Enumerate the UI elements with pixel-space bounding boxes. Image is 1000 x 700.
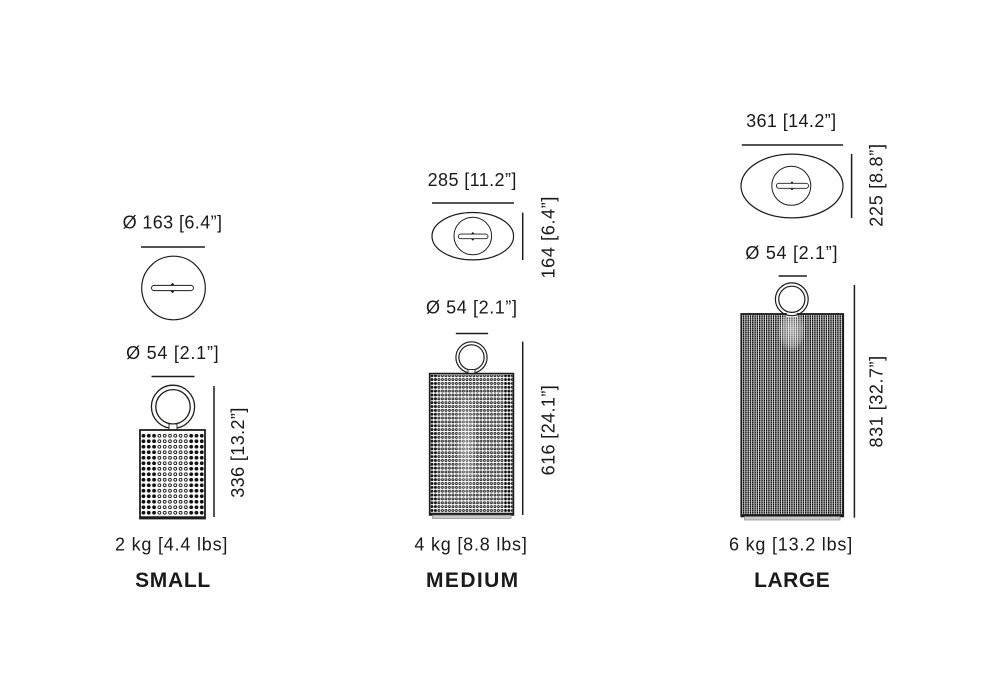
svg-text:Ø 54 [2.1”]: Ø 54 [2.1”]	[126, 343, 219, 363]
svg-text:225 [8.8”]: 225 [8.8”]	[867, 143, 887, 227]
svg-text:831 [32.7”]: 831 [32.7”]	[867, 355, 887, 447]
svg-text:616 [24.1”]: 616 [24.1”]	[539, 385, 559, 475]
svg-text:SMALL: SMALL	[135, 569, 211, 592]
svg-text:Ø 54 [2.1”]: Ø 54 [2.1”]	[426, 298, 518, 318]
svg-text:4 kg [8.8 lbs]: 4 kg [8.8 lbs]	[414, 535, 527, 555]
svg-text:MEDIUM: MEDIUM	[426, 569, 520, 592]
svg-text:Ø 54 [2.1”]: Ø 54 [2.1”]	[745, 243, 838, 263]
svg-text:164 [6.4”]: 164 [6.4”]	[539, 196, 559, 279]
svg-text:LARGE: LARGE	[754, 569, 830, 592]
svg-text:Ø 163 [6.4”]: Ø 163 [6.4”]	[123, 213, 223, 233]
svg-text:285 [11.2”]: 285 [11.2”]	[428, 170, 517, 190]
svg-text:336 [13.2”]: 336 [13.2”]	[228, 407, 248, 497]
svg-text:361 [14.2”]: 361 [14.2”]	[746, 111, 836, 131]
svg-text:6 kg [13.2 lbs]: 6 kg [13.2 lbs]	[729, 535, 853, 555]
svg-text:2 kg [4.4 lbs]: 2 kg [4.4 lbs]	[115, 535, 228, 555]
